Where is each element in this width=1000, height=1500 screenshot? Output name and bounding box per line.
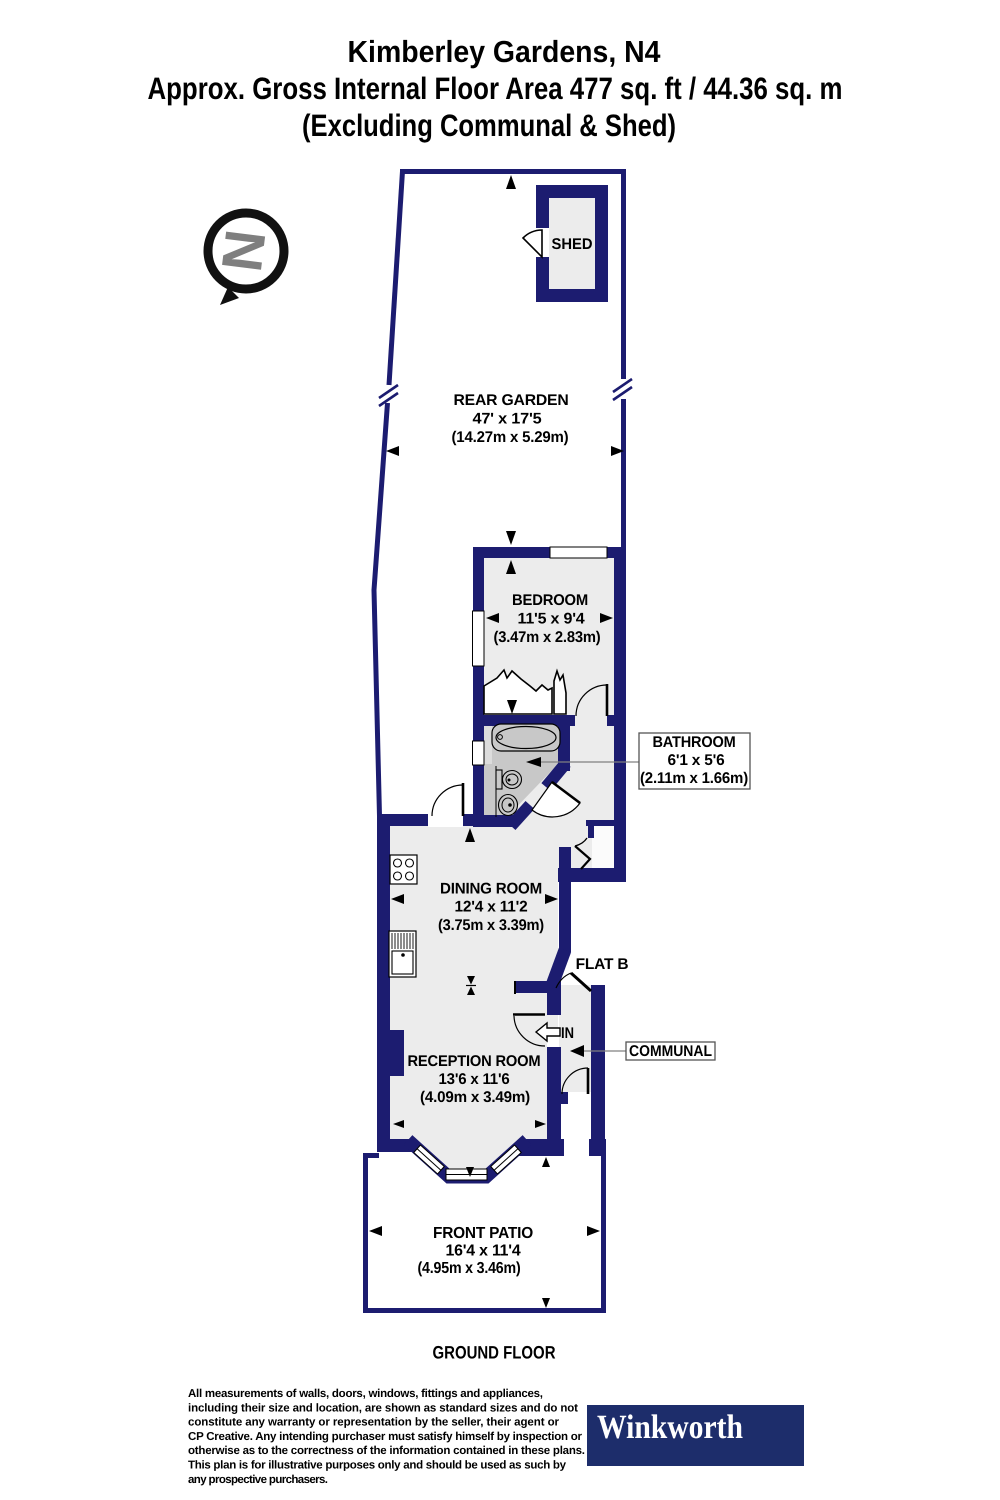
svg-text:(3.75m x 3.39m): (3.75m x 3.39m) [438,917,544,934]
svg-text:any prospective purchasers.: any prospective purchasers. [188,1474,328,1486]
svg-text:(4.95m x 3.46m): (4.95m x 3.46m) [418,1260,521,1277]
svg-text:SHED: SHED [552,236,593,253]
svg-text:N: N [209,226,278,275]
svg-text:Winkworth: Winkworth [597,1409,743,1446]
svg-text:This plan is for illustrative: This plan is for illustrative purposes o… [188,1460,567,1472]
svg-text:BATHROOM: BATHROOM [653,734,736,751]
svg-text:FLAT B: FLAT B [576,956,629,973]
svg-text:DINING ROOM: DINING ROOM [440,881,542,898]
svg-text:Kimberley Gardens, N4: Kimberley Gardens, N4 [348,35,661,69]
svg-text:(4.09m x 3.49m): (4.09m x 3.49m) [420,1089,530,1106]
svg-text:FRONT PATIO: FRONT PATIO [433,1225,533,1242]
svg-text:16'4 x 11'4: 16'4 x 11'4 [446,1243,521,1260]
svg-text:including their size and locat: including their size and location, are s… [188,1402,578,1414]
svg-text:6'1 x 5'6: 6'1 x 5'6 [668,752,726,769]
svg-text:GROUND FLOOR: GROUND FLOOR [433,1343,556,1363]
svg-text:CP Creative. Any intending pur: CP Creative. Any intending purchaser mus… [188,1431,583,1443]
svg-text:47' x 17'5: 47' x 17'5 [473,411,543,428]
svg-text:All measurements of walls, doo: All measurements of walls, doors, window… [188,1388,543,1400]
svg-text:(Excluding Communal & Shed): (Excluding Communal & Shed) [302,108,676,143]
svg-text:otherwise as to the correctnes: otherwise as to the correctness of the i… [188,1445,585,1457]
svg-text:Approx. Gross Internal Floor A: Approx. Gross Internal Floor Area 477 sq… [148,71,843,106]
svg-text:(3.47m x 2.83m): (3.47m x 2.83m) [494,629,601,646]
svg-text:IN: IN [561,1025,574,1042]
svg-text:COMMUNAL: COMMUNAL [629,1043,712,1060]
svg-text:13'6 x 11'6: 13'6 x 11'6 [439,1071,511,1088]
svg-text:(2.11m x 1.66m): (2.11m x 1.66m) [640,770,748,787]
svg-text:REAR GARDEN: REAR GARDEN [454,392,569,409]
svg-text:(14.27m x 5.29m): (14.27m x 5.29m) [452,429,569,446]
svg-text:12'4 x 11'2: 12'4 x 11'2 [455,899,528,916]
svg-text:RECEPTION ROOM: RECEPTION ROOM [408,1053,541,1070]
svg-text:constitute any warranty or rep: constitute any warranty or representatio… [188,1417,560,1429]
svg-text:BEDROOM: BEDROOM [512,592,588,609]
svg-text:11'5 x 9'4: 11'5 x 9'4 [518,611,586,628]
